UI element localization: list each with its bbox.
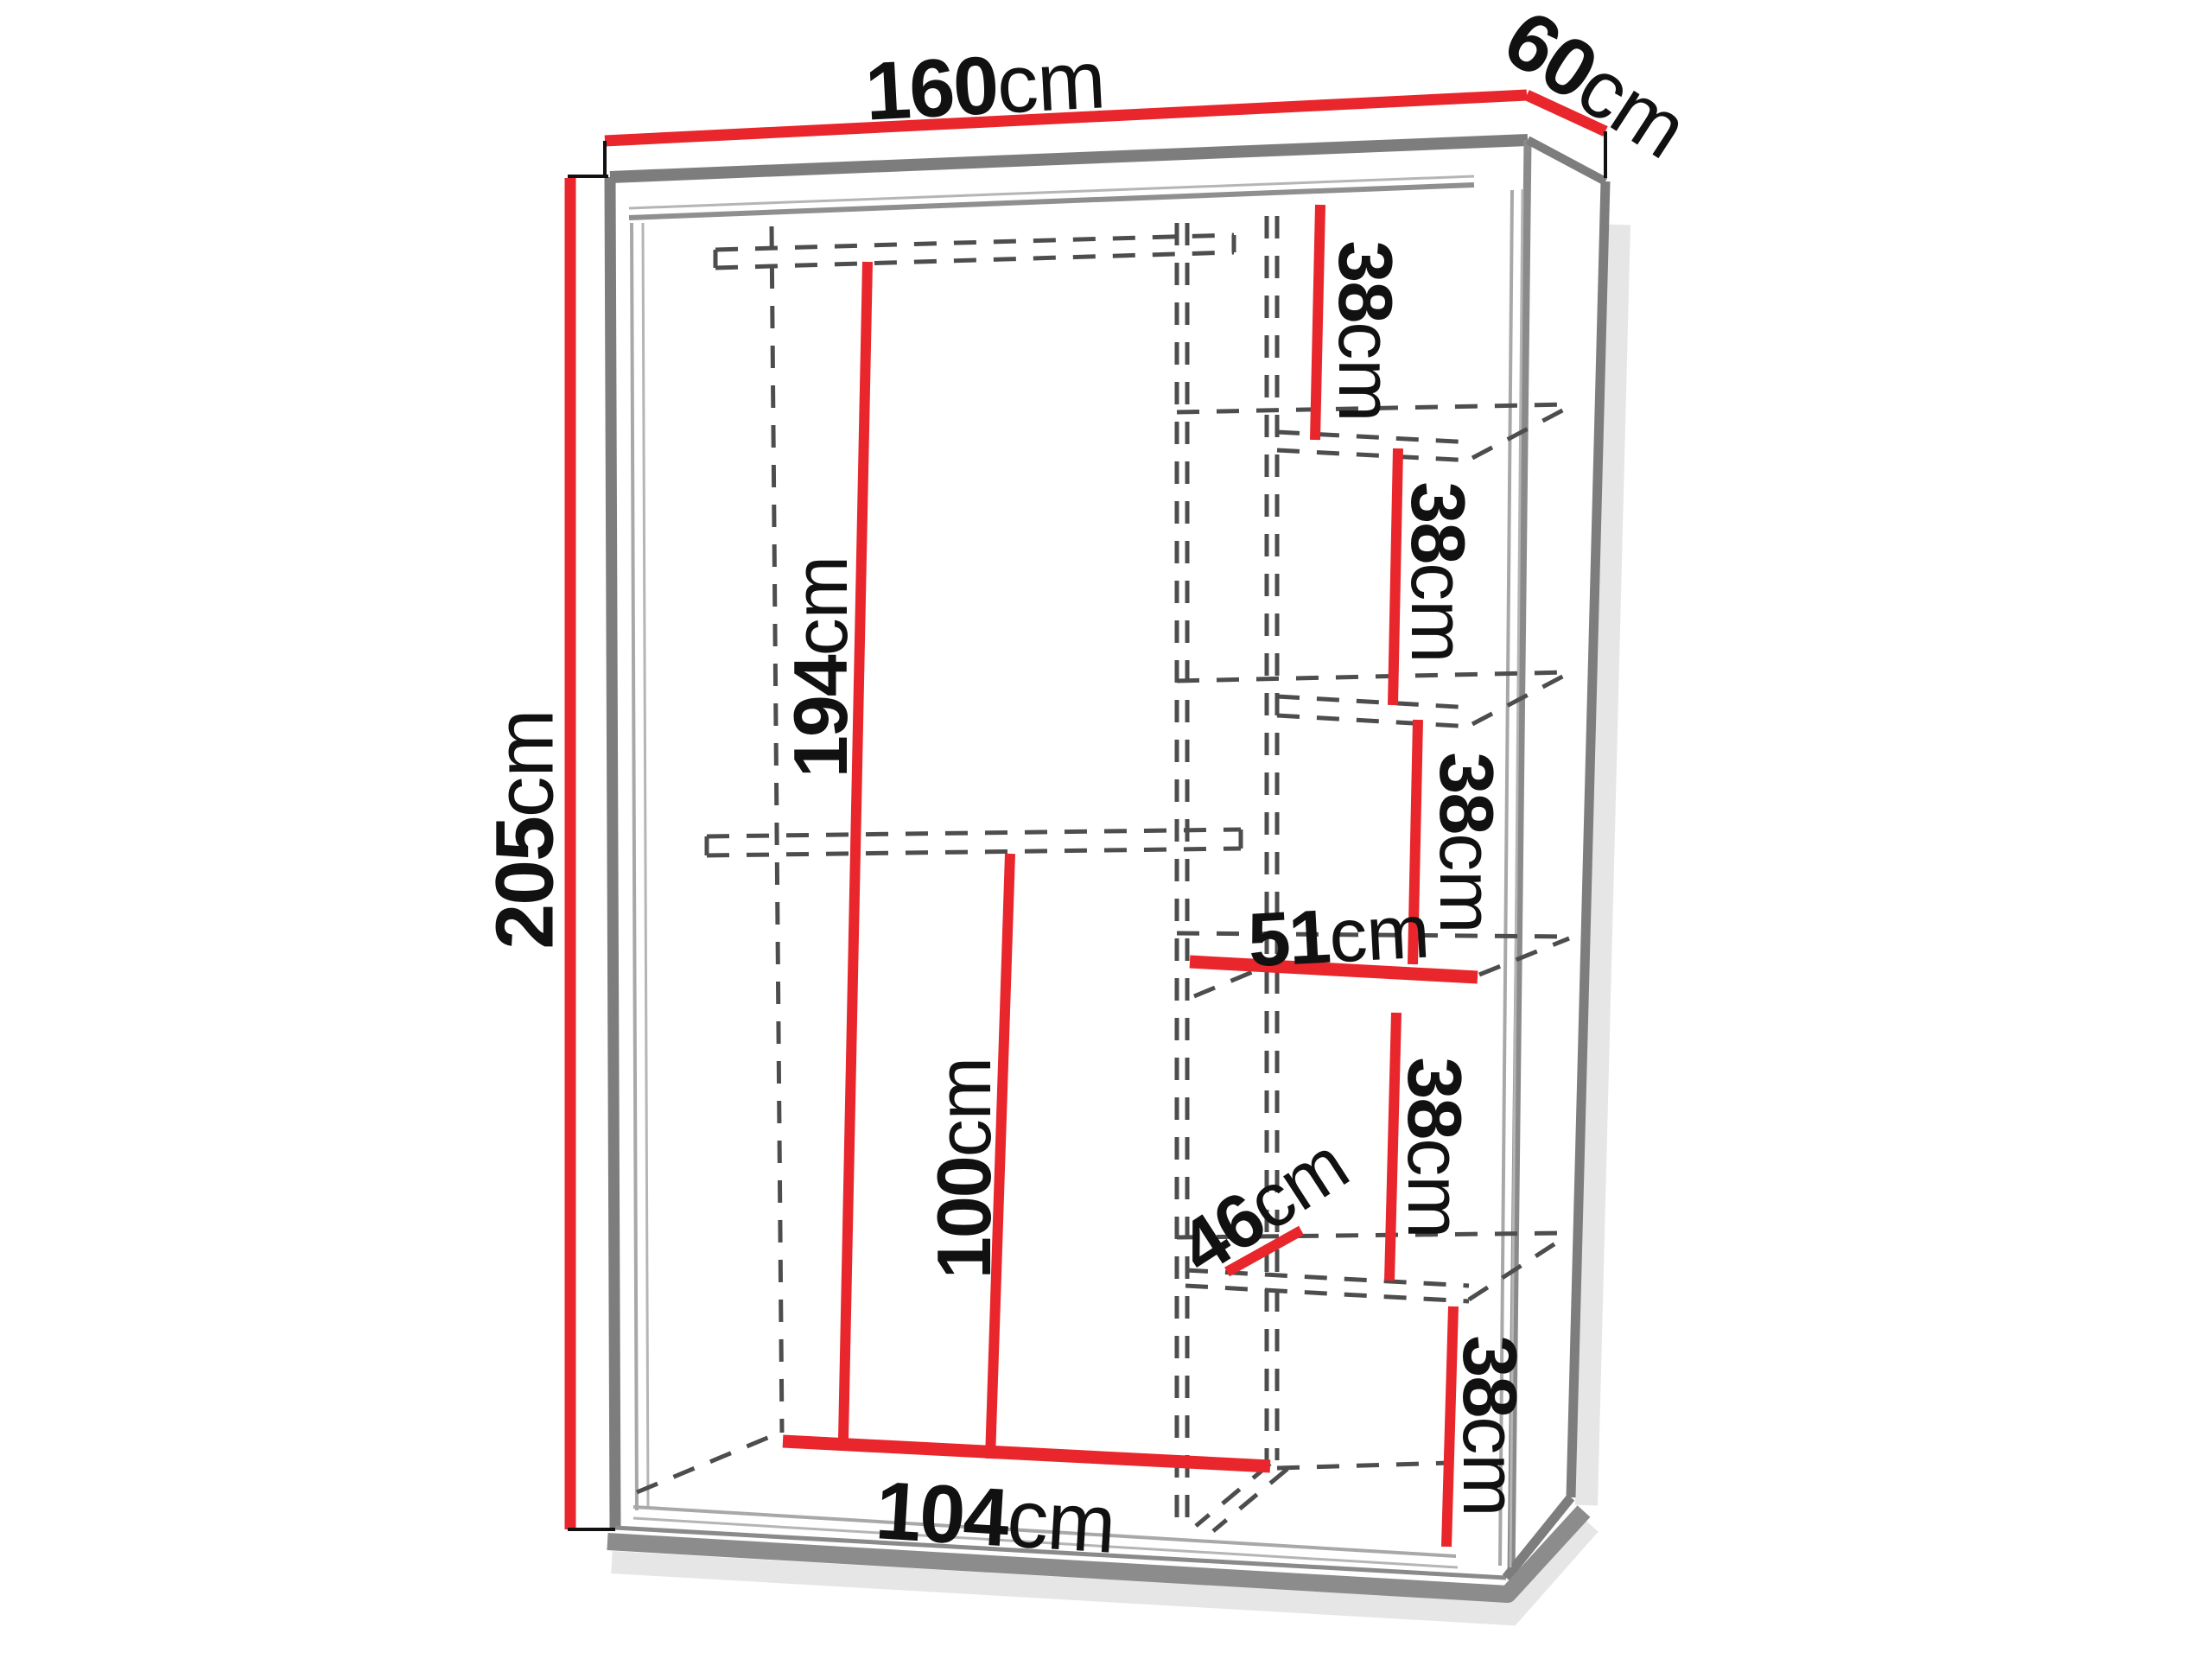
dim-shelf-width51-label: 51cm (1246, 893, 1431, 979)
dim-gap1-label: 38cm (1327, 240, 1403, 421)
dim-hang194-label: 194cm (783, 556, 859, 778)
left-edge (610, 177, 615, 1528)
wardrobe-dimension-diagram: 160cm 60cm 205cm 194cm 100cm 104cm 51cm … (0, 0, 2212, 1659)
dim-hang100-label: 100cm (926, 1058, 1002, 1279)
dim-width-label: 160cm (863, 39, 1107, 133)
dim-width104-label: 104cm (874, 1470, 1117, 1567)
dim-gap4-label: 38cm (1396, 1057, 1472, 1237)
dim-line-gap1-38 (1315, 205, 1320, 440)
dim-gap5-label: 38cm (1452, 1335, 1528, 1516)
dim-gap2-label: 38cm (1400, 481, 1476, 662)
dim-gap3-label: 38cm (1428, 752, 1504, 932)
wardrobe-drawing (0, 0, 2212, 1659)
dim-height-label: 205cm (485, 709, 567, 949)
